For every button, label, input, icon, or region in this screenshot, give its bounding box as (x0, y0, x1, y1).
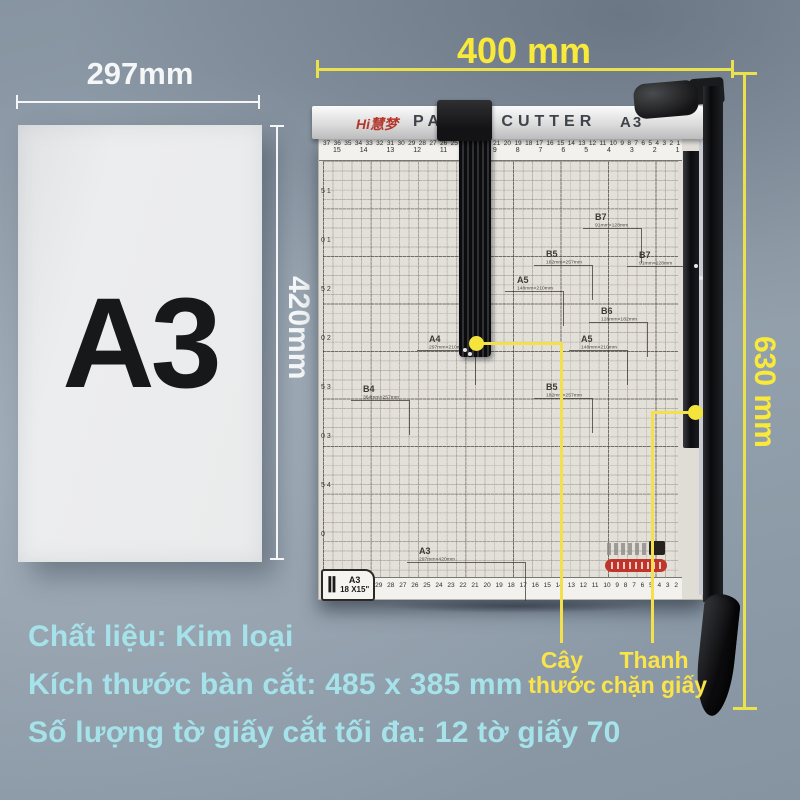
cutter-height-dimension: 630 mm (747, 336, 781, 448)
dimension-cap (733, 707, 757, 710)
pivot-knob (633, 79, 700, 119)
spec-material: Chất liệu: Kim loại (28, 620, 294, 654)
paper-height-dimension-line (276, 126, 278, 560)
cutter-board: 37 36 35 34 33 32 31 30 29 28 27 26 25 2… (318, 138, 703, 600)
dimension-cap (731, 60, 734, 78)
dimension-cap (270, 125, 284, 127)
cutting-arm (703, 86, 723, 602)
print-mark (607, 543, 651, 555)
sliding-clamp (437, 100, 492, 141)
size-marker-a5: A5 148mm×210mm (581, 335, 639, 353)
callout-dot-ruler (469, 336, 484, 351)
left-scale-numbers: 5 10 15 20 25 30 35 40 (321, 167, 333, 557)
callout-label-stopbar: Thanh chặn giấy (593, 648, 715, 698)
cutter-width-dimension-line (317, 68, 733, 71)
callout-label-ruler: Cây thước (522, 648, 602, 698)
callout-line-ruler (476, 342, 562, 345)
dimension-cap (258, 95, 260, 109)
product-infographic: 297mm A3 420mm 400 mm 630 mm 37 36 35 34… (0, 0, 800, 800)
brand-stamp (605, 559, 667, 572)
size-marker-b6: B6 128mm×182mm (601, 307, 659, 325)
paper-stop-bar (683, 151, 700, 448)
top-ruler-strip: 37 36 35 34 33 32 31 30 29 28 27 26 25 2… (319, 139, 682, 161)
paper-width-dimension: 297mm (55, 56, 225, 92)
dimension-cap (733, 72, 757, 75)
callout-dot-stopbar (688, 405, 703, 420)
size-marker-a5: A5 148mm×210mm (517, 276, 575, 294)
size-marker-a3: A3 297mm×420mm (419, 547, 477, 565)
size-marker-b7: B7 91mm×128mm (595, 213, 649, 231)
paper-width-dimension-line (17, 101, 260, 103)
movable-ruler-bar (459, 139, 491, 357)
spec-table-size: Kích thước bàn cắt: 485 x 385 mm (28, 668, 523, 702)
dimension-cap (16, 95, 18, 109)
dimension-cap (270, 558, 284, 560)
size-marker-b4: B4 364mm×257mm (363, 385, 421, 403)
spec-capacity: Số lượng tờ giấy cắt tối đa: 12 tờ giấy … (28, 716, 621, 750)
dimension-cap (316, 60, 319, 78)
paper-size-label: A3 (62, 270, 218, 417)
corner-size-tag: Ⅱ A3 18 X15" (321, 569, 375, 601)
size-marker-b5: B5 182mm×257mm (546, 383, 604, 401)
screw-dot (699, 276, 703, 280)
callout-line-ruler (560, 342, 563, 643)
callout-line-stopbar (651, 411, 654, 643)
screw-dot (463, 348, 467, 352)
cutter-height-dimension-line (743, 74, 746, 710)
a3-paper-sheet: A3 (18, 125, 262, 562)
screw-dot (694, 264, 698, 268)
brand-logo: Hi慧梦 (356, 114, 398, 134)
size-marker-b5: B5 182mm×257mm (546, 250, 604, 268)
top-ruler-cm-numbers: 15 14 13 12 11 10 9 8 7 6 5 4 3 2 1 (319, 147, 682, 154)
paper-height-dimension: 420mm (281, 276, 315, 379)
cutter-width-dimension: 400 mm (424, 30, 624, 72)
tag-numeral: Ⅱ (327, 575, 337, 595)
screw-dot (468, 352, 472, 356)
top-ruler-numbers: 37 36 35 34 33 32 31 30 29 28 27 26 25 2… (319, 139, 682, 147)
